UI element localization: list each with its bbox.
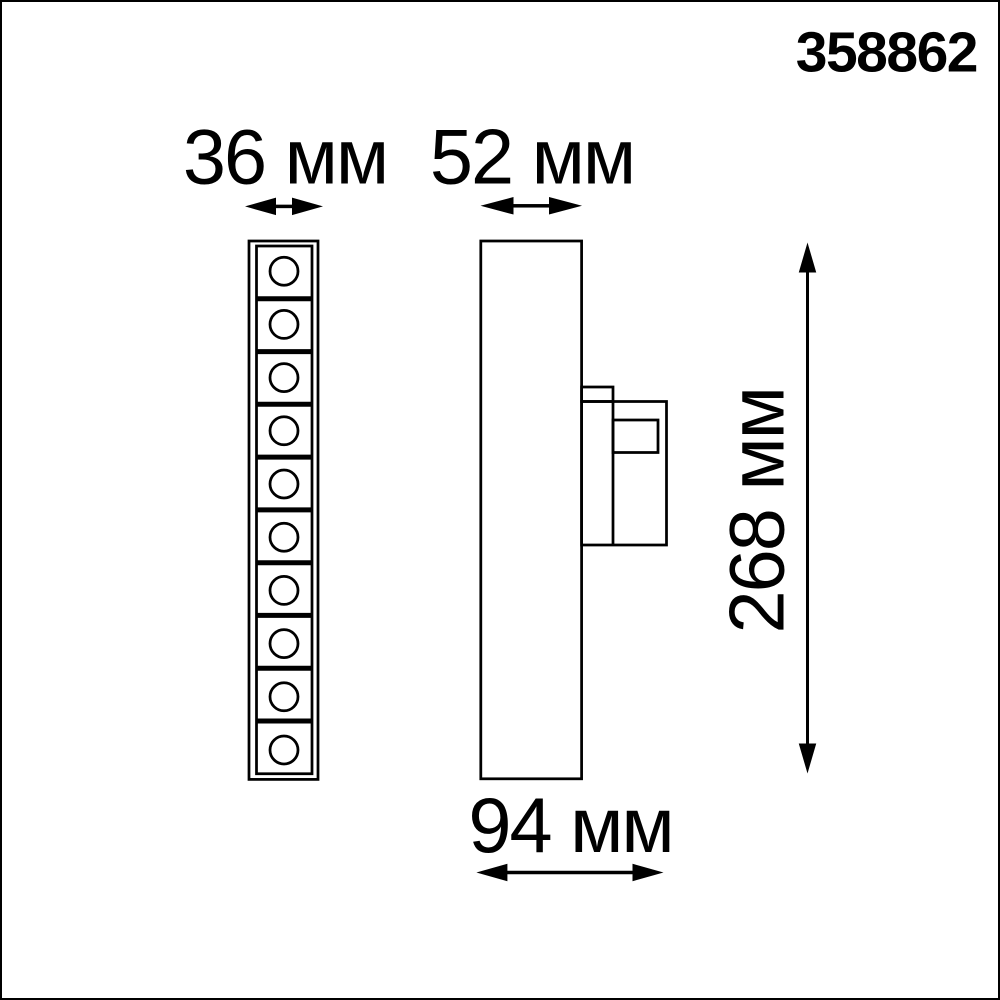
svg-text:36 мм: 36 мм (183, 115, 387, 201)
svg-text:358862: 358862 (796, 21, 977, 85)
svg-text:52 мм: 52 мм (430, 115, 634, 201)
svg-text:94 мм: 94 мм (468, 783, 672, 869)
svg-text:268 мм: 268 мм (715, 388, 801, 633)
